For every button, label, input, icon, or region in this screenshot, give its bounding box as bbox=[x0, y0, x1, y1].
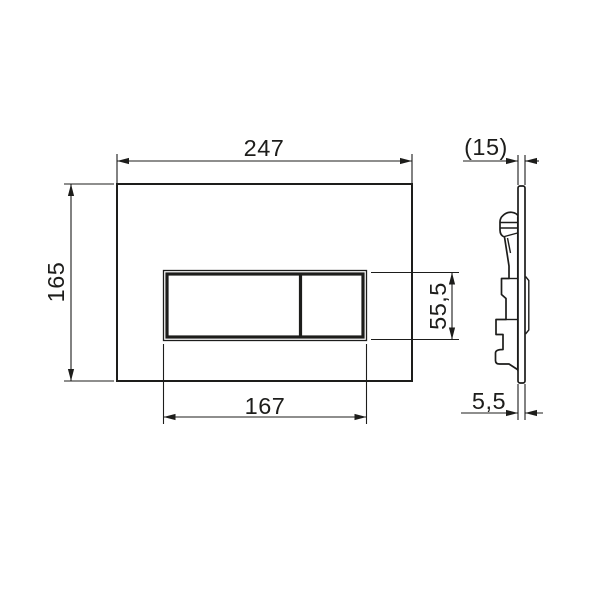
dim-plate-thickness: 5,5 bbox=[461, 384, 543, 420]
button-side-protrusion bbox=[526, 277, 529, 335]
dim-plate-height-label: 165 bbox=[43, 262, 69, 303]
dim-plate-height: 165 bbox=[43, 184, 114, 381]
side-view: (15) 5,5 bbox=[461, 134, 543, 420]
button-panel-frame bbox=[167, 274, 363, 337]
dim-overall-depth: (15) bbox=[463, 134, 539, 185]
technical-drawing-canvas: 247 165 55,5 167 bbox=[0, 0, 600, 600]
front-view: 247 165 55,5 167 bbox=[43, 135, 459, 424]
dim-plate-thickness-label: 5,5 bbox=[472, 388, 506, 414]
dim-plate-width: 247 bbox=[117, 135, 412, 183]
plate-side-profile bbox=[518, 186, 525, 383]
dim-button-width-label: 167 bbox=[245, 393, 286, 419]
dim-button-height-label: 55,5 bbox=[425, 282, 451, 330]
dim-plate-width-label: 247 bbox=[244, 135, 285, 161]
dim-overall-depth-label: (15) bbox=[464, 134, 508, 160]
